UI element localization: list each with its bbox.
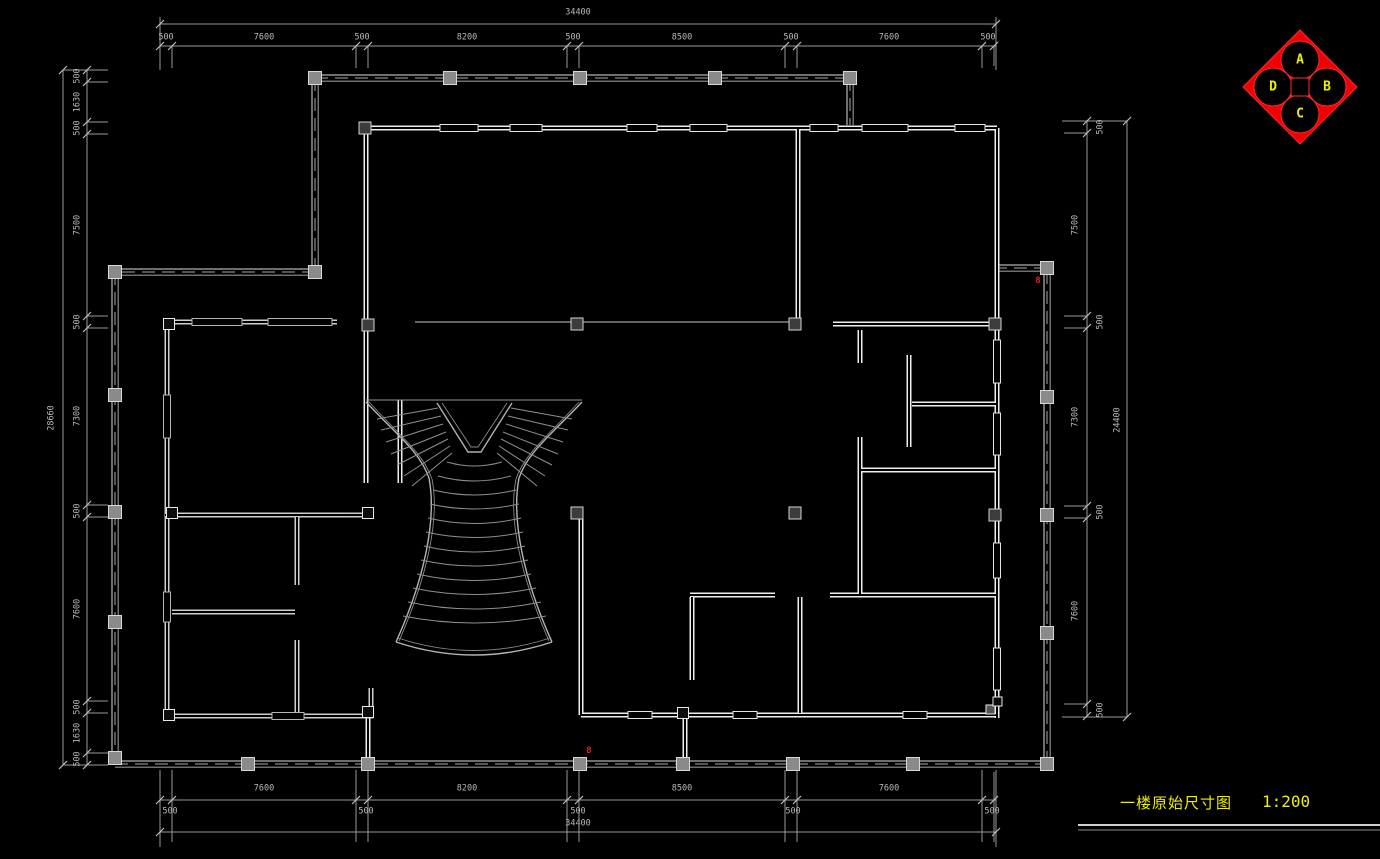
dim-label: 500 [74, 503, 83, 518]
dim-label: 7600 [1072, 601, 1081, 621]
dim-label: 500 [158, 34, 173, 43]
floor-plan-canvas: 34400 500 7600 500 8200 500 8500 500 760… [0, 0, 1380, 859]
drawing-scale: 1:200 [1262, 792, 1310, 811]
compass-letter-d: D [1269, 80, 1277, 95]
dim-label-right-total: 24400 [1114, 407, 1123, 433]
dim-label: 8500 [672, 785, 692, 794]
dim-label: 500 [1097, 702, 1106, 717]
dim-label: 500 [74, 120, 83, 135]
dim-label: 500 [354, 34, 369, 43]
dim-label: 500 [984, 808, 999, 817]
dim-label: 8500 [672, 34, 692, 43]
dim-label: 500 [162, 808, 177, 817]
title-underline [1078, 825, 1380, 830]
inner-walls [165, 128, 997, 758]
dim-label: 500 [74, 314, 83, 329]
dim-label: 500 [1097, 504, 1106, 519]
dim-label: 7500 [1072, 215, 1081, 235]
dim-label: 8200 [457, 785, 477, 794]
dim-label: 500 [74, 68, 83, 83]
dim-label: 500 [570, 808, 585, 817]
dim-label: 500 [74, 751, 83, 766]
dim-label: 500 [785, 808, 800, 817]
grand-staircase [366, 400, 582, 655]
dim-label: 500 [358, 808, 373, 817]
dim-label: 500 [565, 34, 580, 43]
compass-letter-b: B [1323, 80, 1331, 95]
floor-plan-drawing [0, 0, 1380, 859]
drawing-title: 一楼原始尺寸图 [1120, 792, 1232, 813]
compass-letter-c: C [1296, 107, 1304, 122]
compass-marker [1243, 30, 1357, 144]
dim-label: 7300 [74, 406, 83, 426]
dimension-lines [63, 17, 1127, 847]
section-mark-icon: 8 [586, 746, 591, 756]
dim-label: 500 [980, 34, 995, 43]
dim-label: 8200 [457, 34, 477, 43]
dim-label: 500 [783, 34, 798, 43]
dim-label: 1630 [74, 723, 83, 743]
dim-label: 7600 [879, 34, 899, 43]
dim-label: 7600 [254, 34, 274, 43]
dim-label: 7500 [74, 215, 83, 235]
dim-label: 500 [1097, 314, 1106, 329]
dim-label: 7600 [879, 785, 899, 794]
compass-letter-a: A [1296, 53, 1304, 68]
dim-label: 7600 [254, 785, 274, 794]
dim-label-bottom-total: 34400 [565, 820, 591, 829]
section-mark-icon: 8 [1035, 276, 1040, 286]
dim-label: 7600 [74, 599, 83, 619]
dim-label: 500 [74, 699, 83, 714]
dim-label: 500 [1097, 119, 1106, 134]
dim-label: 7300 [1072, 407, 1081, 427]
dim-label-left-total: 28660 [48, 405, 57, 431]
dim-label-top-total: 34400 [565, 9, 591, 18]
dim-label: 1630 [74, 92, 83, 112]
